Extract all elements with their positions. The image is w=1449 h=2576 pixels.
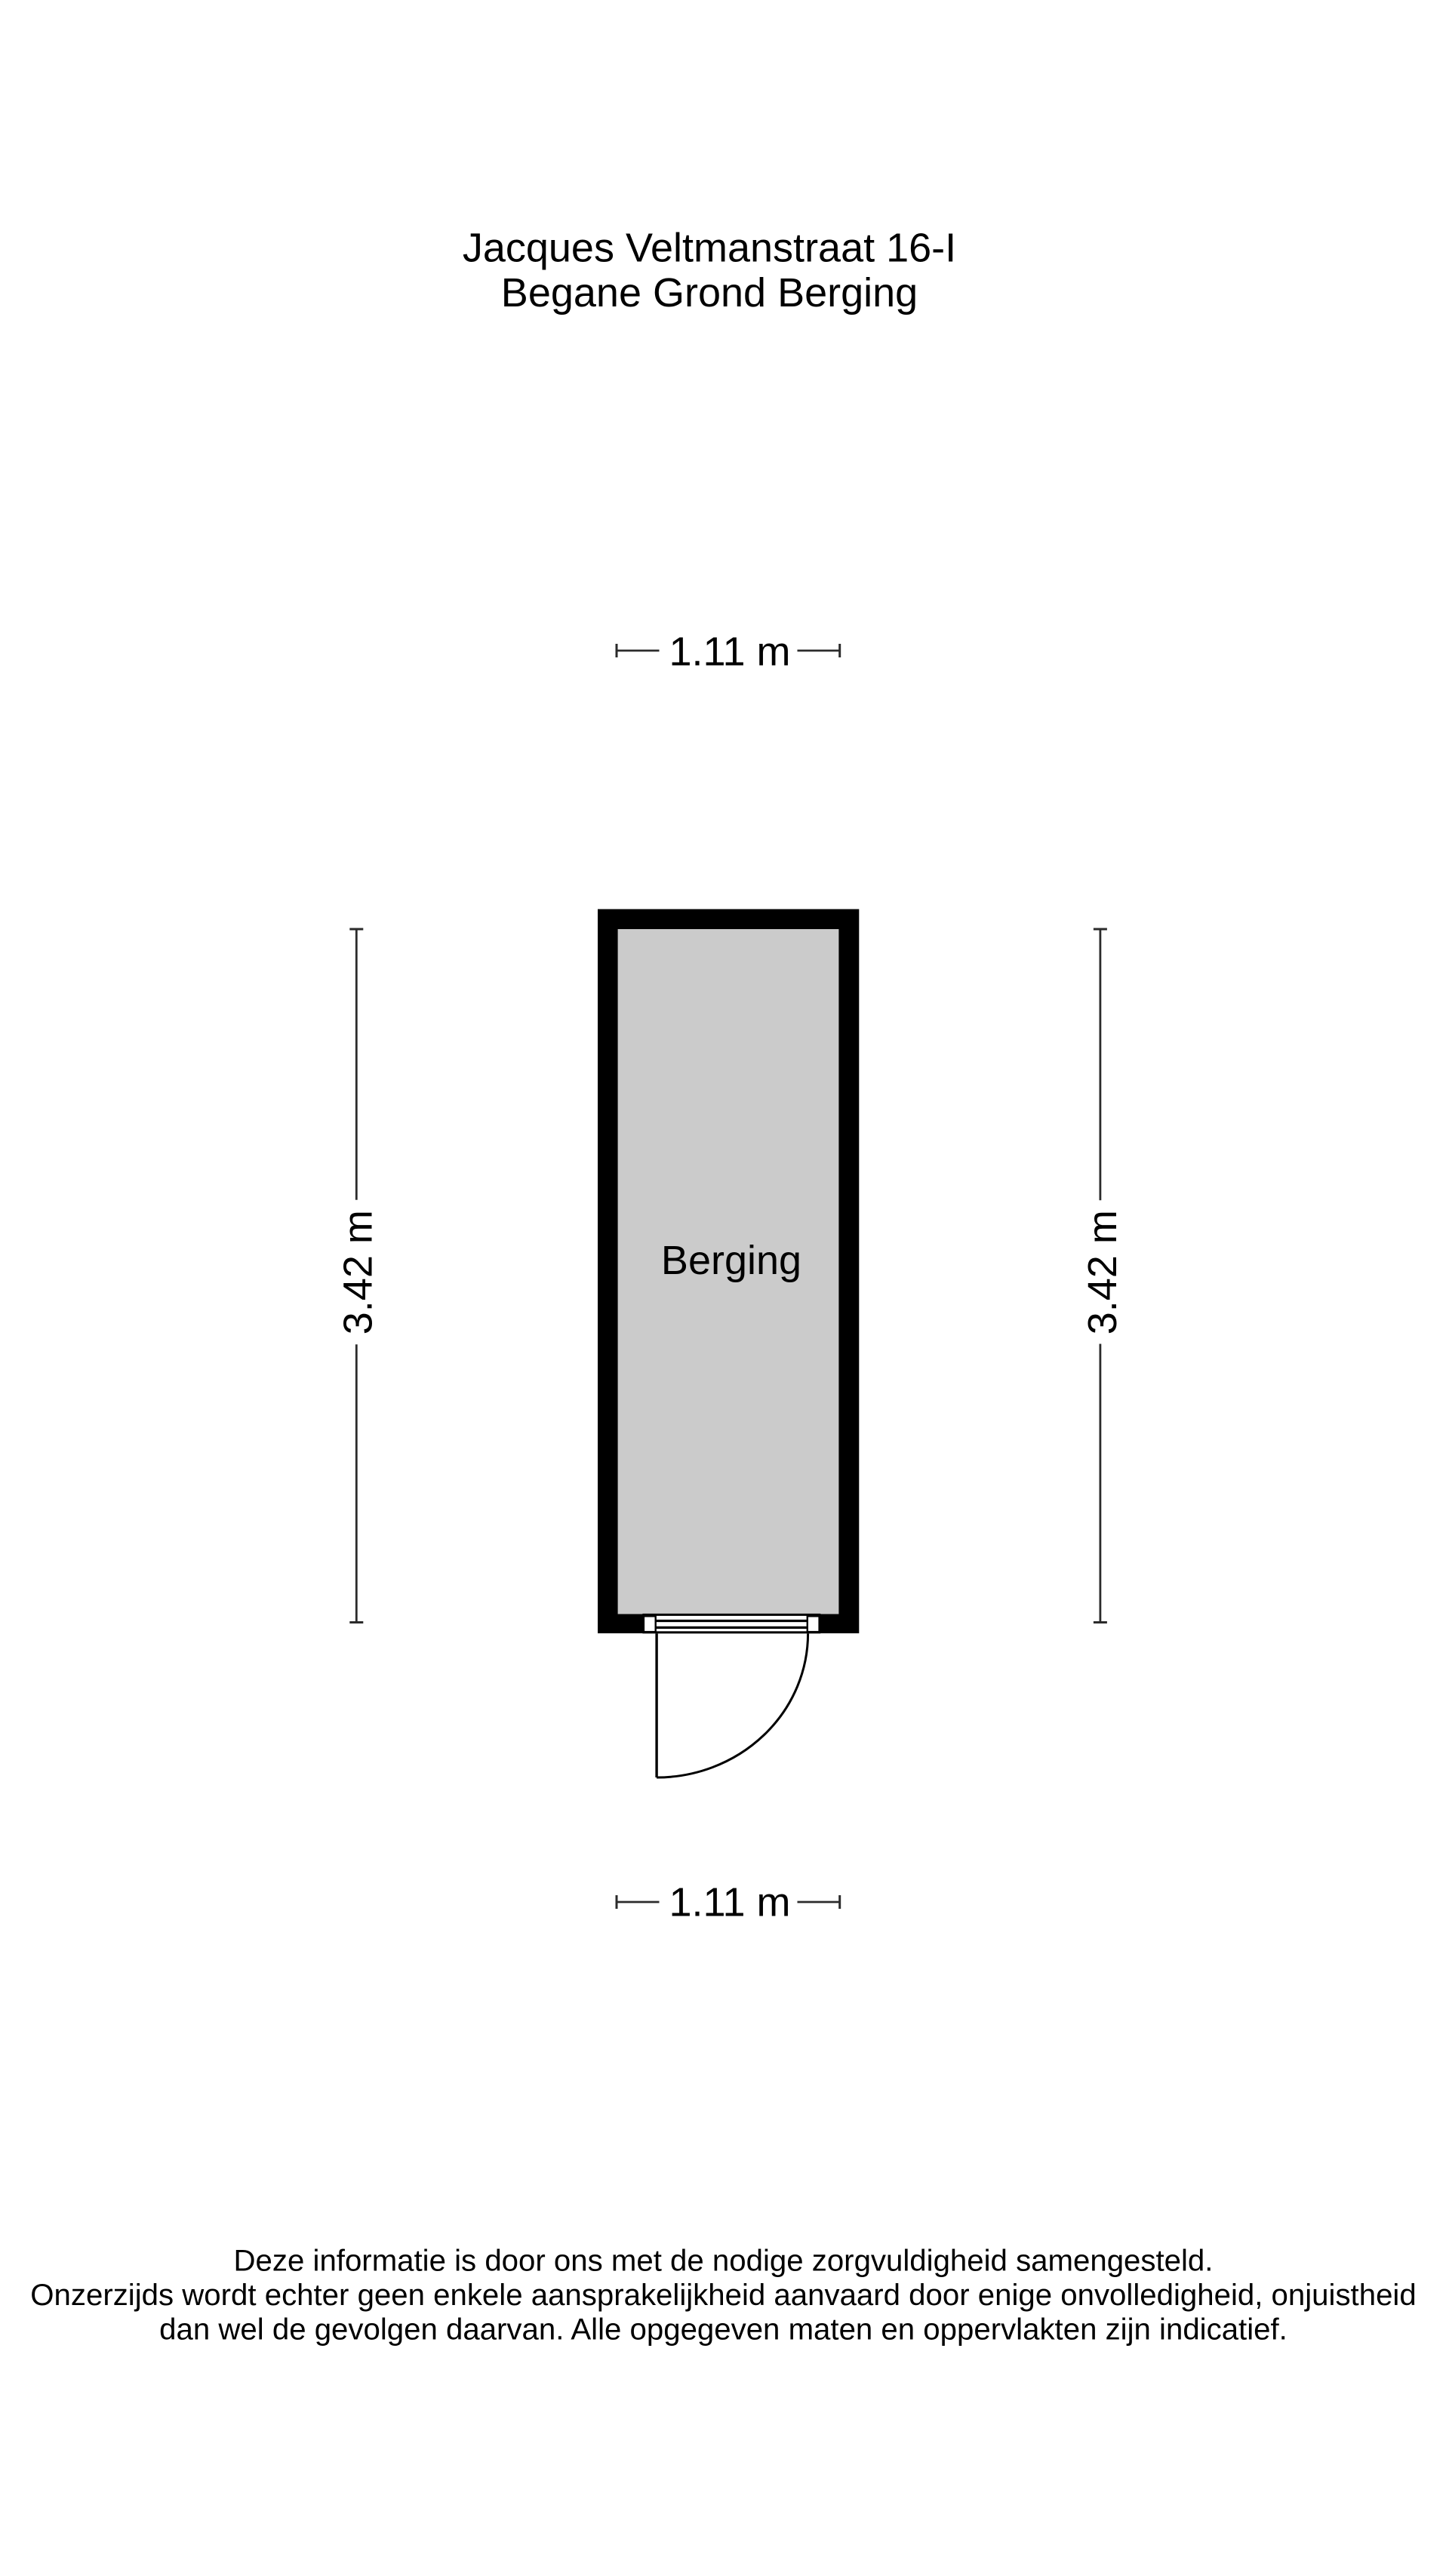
svg-text:Begane Grond Berging: Begane Grond Berging	[501, 270, 918, 315]
svg-text:Jacques Veltmanstraat 16-I: Jacques Veltmanstraat 16-I	[463, 225, 956, 270]
svg-text:Onzerzijds wordt echter geen e: Onzerzijds wordt echter geen enkele aans…	[30, 2278, 1416, 2312]
svg-text:Berging: Berging	[661, 1238, 801, 1283]
svg-text:dan wel de gevolgen daarvan. A: dan wel de gevolgen daarvan. Alle opgege…	[159, 2313, 1287, 2347]
svg-text:3.42 m: 3.42 m	[335, 1210, 380, 1334]
svg-text:1.11 m: 1.11 m	[669, 629, 790, 675]
svg-text:3.42 m: 3.42 m	[1080, 1210, 1125, 1334]
svg-text:1.11 m: 1.11 m	[669, 1880, 790, 1925]
svg-text:Deze informatie is door ons me: Deze informatie is door ons met de nodig…	[234, 2244, 1214, 2278]
